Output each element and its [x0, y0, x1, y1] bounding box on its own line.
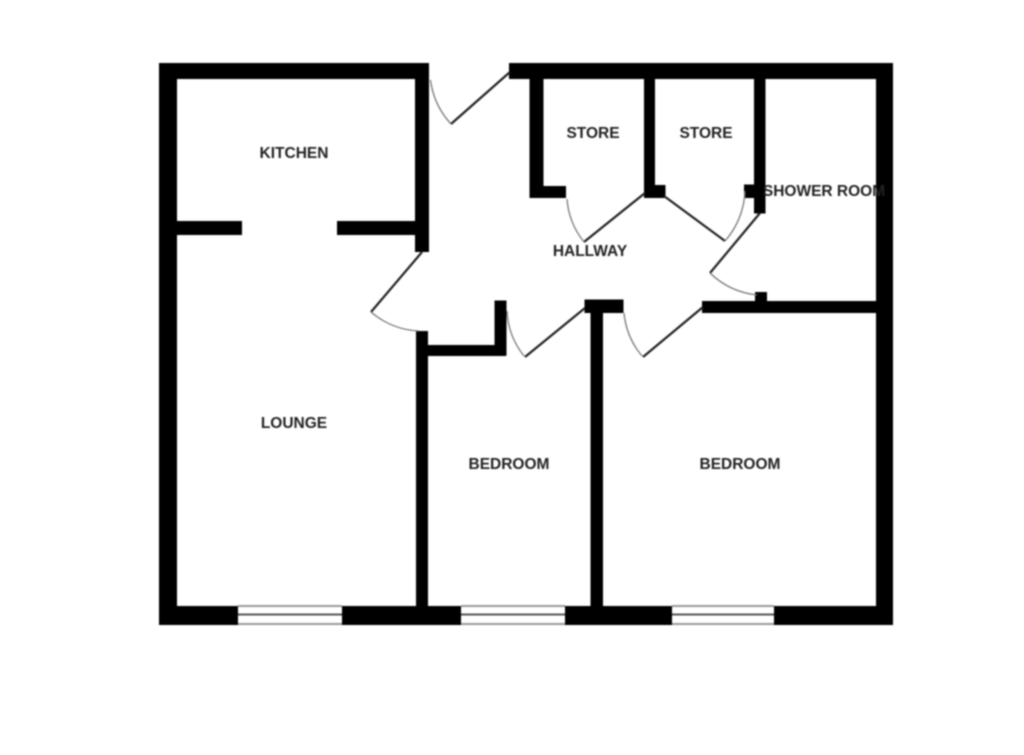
svg-text:HALLWAY: HALLWAY — [553, 243, 628, 260]
svg-text:BEDROOM: BEDROOM — [469, 456, 550, 473]
svg-text:SHOWER ROOM: SHOWER ROOM — [763, 183, 885, 200]
svg-text:LOUNGE: LOUNGE — [261, 415, 327, 432]
svg-text:BEDROOM: BEDROOM — [700, 456, 781, 473]
svg-text:STORE: STORE — [679, 125, 732, 142]
svg-text:STORE: STORE — [566, 125, 619, 142]
svg-text:KITCHEN: KITCHEN — [260, 145, 329, 162]
